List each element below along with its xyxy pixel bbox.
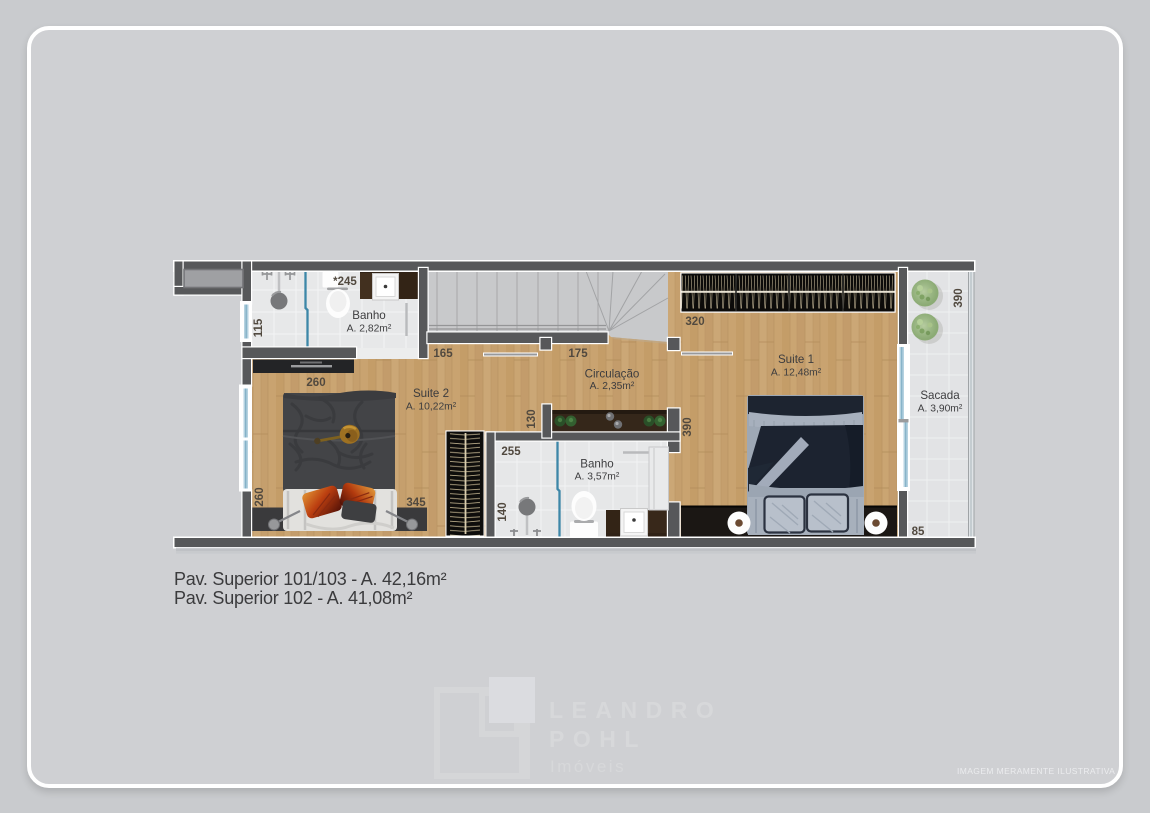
svg-text:345: 345 <box>406 497 426 509</box>
svg-text:260: 260 <box>306 377 325 389</box>
svg-text:Circulação: Circulação <box>585 368 640 381</box>
svg-text:A. 12,48m²: A. 12,48m² <box>771 368 822 379</box>
svg-text:A. 10,22m²: A. 10,22m² <box>406 402 457 413</box>
svg-text:140: 140 <box>497 502 509 521</box>
svg-text:390: 390 <box>953 288 965 307</box>
svg-text:165: 165 <box>433 348 453 360</box>
svg-text:Banho: Banho <box>580 458 614 471</box>
svg-text:85: 85 <box>912 526 925 538</box>
svg-text:320: 320 <box>685 316 704 328</box>
svg-text:255: 255 <box>501 446 521 458</box>
svg-text:Suite 1: Suite 1 <box>778 353 814 366</box>
svg-text:115: 115 <box>253 318 265 337</box>
svg-text:Sacada: Sacada <box>920 389 960 402</box>
svg-text:A. 3,90m²: A. 3,90m² <box>918 404 963 415</box>
svg-text:A. 3,57m²: A. 3,57m² <box>575 472 620 483</box>
svg-text:A. 2,82m²: A. 2,82m² <box>347 324 392 335</box>
svg-text:390: 390 <box>682 417 694 436</box>
svg-text:175: 175 <box>568 348 588 360</box>
svg-text:Suite 2: Suite 2 <box>413 387 449 400</box>
svg-text:*245: *245 <box>333 276 357 288</box>
svg-text:130: 130 <box>526 409 538 428</box>
svg-text:260: 260 <box>254 487 266 506</box>
svg-text:A. 2,35m²: A. 2,35m² <box>590 381 635 392</box>
svg-text:Banho: Banho <box>352 309 386 322</box>
